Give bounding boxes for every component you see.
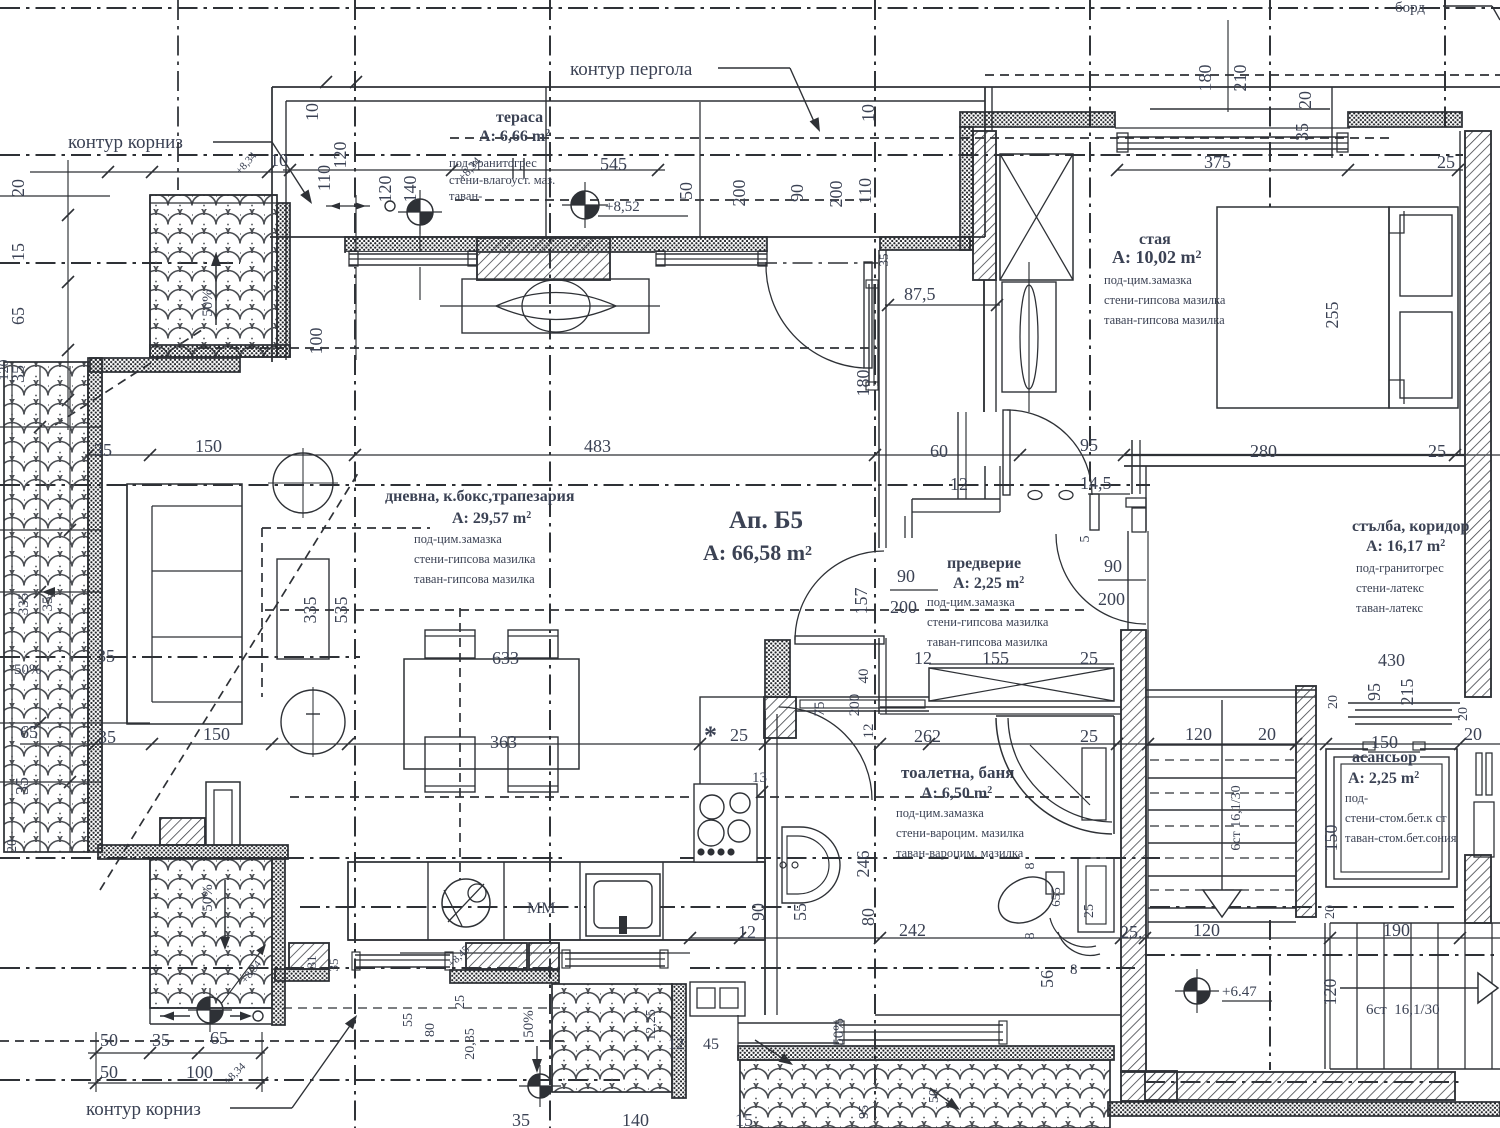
svg-text:25: 25 [1080, 648, 1098, 668]
svg-text:25: 25 [1082, 904, 1097, 918]
svg-text:35: 35 [94, 440, 112, 460]
svg-text:20: 20 [1323, 905, 1338, 919]
svg-text:13: 13 [752, 770, 767, 786]
svg-text:А: 6,50 m2: А: 6,50 m2 [921, 785, 992, 802]
svg-text:120: 120 [1320, 979, 1340, 1006]
svg-text:180: 180 [1195, 65, 1215, 92]
svg-text:12: 12 [738, 922, 756, 942]
svg-text:под-цим.замазка: под-цим.замазка [1104, 273, 1192, 287]
svg-text:200: 200 [890, 597, 917, 617]
svg-text:35: 35 [98, 727, 116, 747]
svg-text:120: 120 [0, 360, 12, 381]
svg-text:210: 210 [1230, 65, 1250, 92]
svg-text:100: 100 [186, 1062, 213, 1082]
svg-text:140: 140 [622, 1110, 649, 1128]
svg-text:375: 375 [1204, 152, 1231, 172]
svg-text:10: 10 [302, 103, 322, 121]
svg-text:под-цим.замазка: под-цим.замазка [927, 595, 1015, 609]
svg-text:таван-: таван- [449, 189, 482, 203]
svg-text:633: 633 [492, 648, 519, 668]
svg-text:190: 190 [1383, 920, 1410, 940]
svg-text:90: 90 [897, 566, 915, 586]
svg-text:10: 10 [270, 150, 288, 170]
svg-text:Ап. Б5: Ап. Б5 [729, 507, 803, 534]
svg-text:А: 6,66 m2: А: 6,66 m2 [479, 128, 550, 145]
svg-text:35: 35 [40, 597, 56, 612]
svg-text:545: 545 [600, 154, 627, 174]
svg-text:стая: стая [1139, 231, 1171, 248]
svg-text:75: 75 [812, 702, 828, 717]
svg-text:А: 29,57 m2: А: 29,57 m2 [452, 510, 531, 527]
svg-text:стени-гипсова мазилка: стени-гипсова мазилка [927, 615, 1049, 629]
svg-text:35: 35 [1292, 123, 1312, 141]
svg-text:8: 8 [1070, 962, 1078, 978]
svg-text:14,5: 14,5 [1080, 473, 1112, 493]
svg-text:А: 2,25 m2: А: 2,25 m2 [1348, 770, 1419, 787]
svg-text:80: 80 [858, 908, 878, 926]
svg-text:655: 655 [1048, 887, 1063, 907]
svg-text:20: 20 [8, 179, 28, 197]
svg-text:65: 65 [20, 722, 38, 742]
svg-text:35: 35 [326, 959, 341, 972]
svg-text:25.: 25. [1120, 922, 1143, 942]
svg-text:90: 90 [748, 903, 768, 921]
svg-text:под-цим.замазка: под-цим.замазка [896, 806, 984, 820]
svg-text:110: 110 [855, 178, 875, 204]
svg-text:контур корниз: контур корниз [86, 1099, 201, 1120]
svg-text:45: 45 [703, 1036, 719, 1053]
svg-text:таван-гипсова мазилка: таван-гипсова мазилка [1104, 313, 1225, 327]
svg-text:25: 25 [1437, 152, 1455, 172]
svg-text:борд: борд [1395, 0, 1425, 16]
svg-text:таван-латекс: таван-латекс [1356, 601, 1424, 615]
svg-text:180: 180 [853, 370, 873, 397]
svg-text:12: 12 [914, 648, 932, 668]
svg-text:150: 150 [203, 724, 230, 744]
svg-text:12: 12 [861, 724, 877, 739]
svg-text:262: 262 [914, 726, 941, 746]
svg-text:55: 55 [790, 903, 810, 921]
svg-text:*: * [704, 721, 717, 750]
svg-text:35: 35 [97, 646, 115, 666]
svg-text:50: 50 [100, 1030, 118, 1050]
svg-text:стени-гипсова мазилка: стени-гипсова мазилка [414, 552, 536, 566]
svg-text:335: 335 [300, 597, 320, 624]
svg-text:20: 20 [1295, 91, 1315, 109]
svg-text:430: 430 [1378, 650, 1405, 670]
svg-text:120: 120 [1185, 724, 1212, 744]
svg-text:157: 157 [851, 588, 871, 615]
svg-text:20: 20 [1464, 724, 1482, 744]
svg-text:8: 8 [1023, 863, 1038, 870]
svg-text:90: 90 [787, 184, 807, 202]
svg-text:150: 150 [195, 436, 222, 456]
svg-text:контур корниз: контур корниз [68, 132, 183, 153]
svg-text:90: 90 [1104, 556, 1122, 576]
svg-text:25: 25 [1080, 726, 1098, 746]
svg-text:65: 65 [210, 1028, 228, 1048]
svg-text:50%: 50% [200, 289, 216, 317]
svg-text:483: 483 [584, 436, 611, 456]
svg-text:40: 40 [856, 669, 872, 684]
svg-text:+8,52: +8,52 [605, 199, 640, 215]
svg-text:31: 31 [304, 956, 319, 969]
svg-text:под-гранитогрес: под-гранитогрес [1356, 561, 1444, 575]
svg-text:100: 100 [306, 328, 326, 355]
svg-text:50%: 50% [200, 884, 216, 912]
svg-text:50: 50 [100, 1062, 118, 1082]
svg-text:200: 200 [847, 694, 863, 717]
svg-text:215: 215 [1397, 679, 1417, 706]
svg-text:таван-гипсова мазилка: таван-гипсова мазилка [927, 635, 1048, 649]
svg-text:50%: 50% [14, 662, 42, 678]
svg-text:10: 10 [858, 104, 878, 122]
svg-text:110: 110 [314, 165, 334, 191]
svg-text:тоалетна, баня: тоалетна, баня [901, 763, 1015, 782]
svg-text:150: 150 [1371, 732, 1398, 752]
svg-text:200: 200 [729, 180, 749, 207]
svg-text:255: 255 [1322, 302, 1342, 329]
svg-text:12,25: 12,25 [644, 1009, 659, 1041]
svg-text:363: 363 [490, 732, 517, 752]
svg-text:95: 95 [857, 1105, 872, 1119]
svg-text:стени-вароцим. мазилка: стени-вароцим. мазилка [896, 826, 1025, 840]
svg-text:335: 335 [16, 593, 32, 616]
svg-text:50%: 50% [521, 1010, 537, 1038]
svg-text:стени-стом.бет.к ст: стени-стом.бет.к ст [1345, 811, 1447, 825]
svg-text:95: 95 [1080, 435, 1098, 455]
svg-text:ММ: ММ [527, 900, 555, 917]
svg-text:155: 155 [982, 648, 1009, 668]
svg-text:50: 50 [676, 182, 696, 200]
svg-text:20: 20 [5, 839, 20, 853]
svg-text:15: 15 [735, 1110, 753, 1128]
svg-text:+6.47: +6.47 [1222, 984, 1257, 1000]
svg-text:120: 120 [330, 142, 350, 169]
svg-text:20: 20 [1326, 695, 1341, 709]
svg-text:6ст 16,1/30: 6ст 16,1/30 [1229, 785, 1244, 850]
svg-text:35: 35 [512, 1110, 530, 1128]
svg-text:120: 120 [1193, 920, 1220, 940]
svg-text:535: 535 [331, 597, 351, 624]
svg-text:8: 8 [1023, 933, 1038, 940]
svg-text:25: 25 [730, 725, 748, 745]
svg-text:60: 60 [930, 441, 948, 461]
svg-text:65: 65 [8, 307, 28, 325]
svg-text:под-цим.замазка: под-цим.замазка [414, 532, 502, 546]
svg-text:280: 280 [1250, 441, 1277, 461]
svg-text:56: 56 [1037, 970, 1057, 988]
svg-text:5: 5 [1078, 536, 1093, 543]
svg-text:стълба, коридор: стълба, коридор [1352, 518, 1469, 535]
svg-text:таван-вароцим. мазилка: таван-вароцим. мазилка [896, 846, 1024, 860]
svg-text:55: 55 [401, 1013, 416, 1027]
svg-text:12: 12 [950, 474, 968, 494]
svg-text:тераса: тераса [496, 109, 543, 126]
svg-text:95: 95 [1364, 683, 1384, 701]
svg-text:242: 242 [899, 920, 926, 940]
svg-text:А: 66,58 m2: А: 66,58 m2 [703, 540, 812, 565]
svg-text:200: 200 [1098, 589, 1125, 609]
svg-text:таван-гипсова мазилка: таван-гипсова мазилка [414, 572, 535, 586]
svg-text:25: 25 [1428, 441, 1446, 461]
svg-text:6ст 16,1/30: 6ст 16,1/30 [1366, 1002, 1440, 1018]
svg-text:А: 16,17 m2: А: 16,17 m2 [1366, 538, 1445, 555]
svg-text:87,5: 87,5 [904, 284, 936, 304]
svg-text:50%: 50% [831, 1018, 847, 1046]
svg-text:20,35: 20,35 [463, 1028, 478, 1060]
svg-text:12: 12 [668, 1036, 684, 1053]
svg-text:А: 10,02 m2: А: 10,02 m2 [1112, 247, 1202, 267]
svg-text:35: 35 [12, 777, 32, 795]
svg-text:таван-стом.бет.сония: таван-стом.бет.сония [1345, 831, 1457, 845]
svg-text:20: 20 [1258, 724, 1276, 744]
svg-text:стени-гипсова мазилка: стени-гипсова мазилка [1104, 293, 1226, 307]
svg-text:25: 25 [453, 995, 468, 1009]
svg-text:стени-латекс: стени-латекс [1356, 581, 1424, 595]
svg-text:под-: под- [1345, 791, 1368, 805]
svg-text:80: 80 [423, 1023, 438, 1037]
svg-text:20: 20 [1456, 707, 1471, 721]
svg-text:140: 140 [400, 176, 420, 203]
svg-text:120: 120 [375, 176, 395, 203]
svg-text:246: 246 [853, 851, 873, 878]
svg-text:контур пергола: контур пергола [570, 59, 693, 80]
svg-text:дневна, к.бокс,трапезария: дневна, к.бокс,трапезария [385, 488, 575, 505]
svg-text:15: 15 [8, 243, 28, 261]
svg-text:предверие: предверие [947, 555, 1021, 572]
svg-text:200: 200 [826, 181, 846, 208]
svg-text:150: 150 [1321, 825, 1341, 852]
svg-text:35: 35 [152, 1030, 170, 1050]
svg-text:А: 2,25 m2: А: 2,25 m2 [953, 575, 1024, 592]
